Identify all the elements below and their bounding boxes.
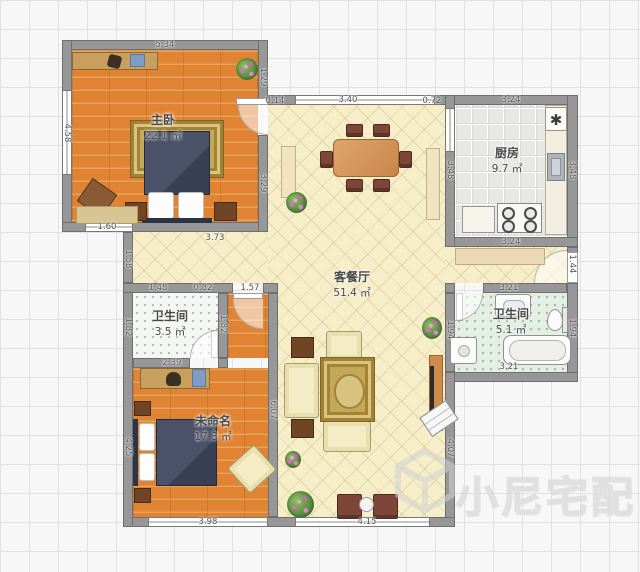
sofa-armchair[interactable] [326,331,362,360]
dimension-label: 4.07 [445,439,455,458]
bed-pillow [139,423,155,451]
stove-burner-icon [524,220,537,233]
side-table[interactable] [291,337,314,358]
dimension-label: 1.60 [98,222,117,232]
room-area: 3.5 ㎡ [152,324,188,339]
dimension-label: 3.48 [445,161,455,180]
side-table[interactable] [291,419,314,438]
room-name: 厨房 [492,144,523,161]
dimension-label: 6.07 [268,401,278,420]
dimension-label: 1.44 [567,255,577,274]
washing-machine[interactable] [450,337,477,364]
living-rug[interactable] [320,357,375,422]
nightstand[interactable] [214,202,237,221]
dining-chair[interactable] [320,151,333,168]
dining-chair[interactable] [373,124,390,137]
dining-chair[interactable] [399,151,412,168]
kitchen-sliding-door[interactable] [455,248,545,265]
dimension-label: 4.25 [123,438,133,457]
dining-chair[interactable] [346,179,363,192]
room-label-bedroom2[interactable]: 未命名 17.3 ㎡ [194,412,231,444]
dimension-label: 3.98 [199,517,218,527]
room-name: 卫生间 [493,305,529,322]
bed-headboard [133,419,138,486]
clothes-shirt-icon [192,369,206,387]
wall-segment[interactable] [483,283,567,293]
wall-segment[interactable] [218,358,228,368]
nightstand[interactable] [134,488,151,503]
dining-chair[interactable] [346,124,363,137]
dimension-label: 3.21 [500,283,519,293]
kitchen-cabinet[interactable] [462,206,495,233]
leisure-chair[interactable] [373,494,398,519]
dimension-label: 4.15 [358,517,377,527]
potted-plant[interactable] [286,192,307,213]
wall-segment[interactable] [445,283,455,293]
dimension-label: 1.29 [258,68,268,87]
dimension-label: 0.14 [266,96,285,106]
clothes-shirt-icon [130,54,145,67]
dimension-label: 1.82 [123,318,133,337]
bathtub-basin [509,340,566,361]
window[interactable] [295,95,435,105]
wall-segment[interactable] [123,283,233,293]
toilet[interactable] [547,309,563,331]
wall-segment[interactable] [263,283,278,293]
dimension-label: 4.58 [62,124,72,143]
dimension-label: 3.21 [500,362,519,372]
bed-headboard [142,218,212,223]
dimension-label: 3.24 [502,95,521,105]
dimension-label: 1.94 [445,321,455,340]
dimension-label: 0.72 [423,96,442,106]
room-area: 9.7 ㎡ [492,161,523,176]
kitchen-sink[interactable] [547,153,565,181]
leisure-chair[interactable] [337,494,362,519]
stove-burner-icon [524,207,537,220]
potted-plant[interactable] [422,317,442,339]
room-label-living-dining[interactable]: 客餐厅 51.4 ㎡ [333,268,370,300]
desk-chair-icon [166,372,181,386]
dimension-label: 3.40 [339,95,358,105]
sink-basin [551,158,561,176]
room-label-master-bedroom[interactable]: 主卧 22.1 ㎡ [144,111,181,143]
room-name: 主卧 [144,111,181,128]
room-name: 未命名 [194,412,231,429]
bathtub[interactable] [503,335,571,365]
room-label-bath-large[interactable]: 卫生间 5.1 ㎡ [493,305,529,337]
watermark-text: 小尼宅配 [456,464,636,525]
stove-burner-icon [502,220,515,233]
dimension-label: 1.94 [567,319,577,338]
dimension-label: 3.48 [567,161,577,180]
floorplan-canvas[interactable]: ✱ 主卧 22.1 ㎡ [0,0,640,572]
dining-table[interactable] [333,139,399,177]
dimension-label: 1.82 [218,315,228,334]
washer-door-icon [458,345,470,357]
sofa-three-seat[interactable] [284,363,319,418]
dimension-label: 3.29 [258,174,268,193]
side-cabinet[interactable] [426,148,440,220]
side-cabinet[interactable] [281,146,296,198]
dimension-label: 5.34 [156,40,175,50]
room-label-bath-small[interactable]: 卫生间 3.5 ㎡ [152,307,188,339]
dimension-label: 2.39 [163,358,182,368]
round-table[interactable] [359,497,374,512]
gas-appliance-icon: ✱ [550,111,563,129]
room-area: 5.1 ㎡ [493,322,529,337]
room-area: 51.4 ㎡ [333,285,370,300]
dimension-label: 1.57 [241,283,260,293]
potted-plant[interactable] [285,451,301,468]
bed-pillow [139,453,155,481]
sofa-loveseat[interactable] [323,421,371,452]
door-leaf[interactable] [236,98,268,105]
window[interactable] [445,108,455,152]
water-heater[interactable]: ✱ [545,107,567,131]
room-label-kitchen[interactable]: 厨房 9.7 ㎡ [492,144,523,176]
nightstand[interactable] [134,401,151,416]
dimension-label: 0.82 [194,283,213,293]
room-area: 22.1 ㎡ [144,128,181,143]
room-floor-living-corridor[interactable] [133,232,268,283]
dimension-label: 3.24 [502,237,521,247]
bed-pillow [178,192,204,219]
dimension-label: 1.58 [123,250,133,269]
dimension-label: 3.73 [206,233,225,243]
potted-plant[interactable] [287,491,314,518]
bed-pillow [148,192,174,219]
dimension-label: 1.48 [149,283,168,293]
stove[interactable] [497,203,542,233]
stove-burner-icon [502,207,515,220]
room-name: 卫生间 [152,307,188,324]
wall-segment[interactable] [445,372,578,382]
room-name: 客餐厅 [333,268,370,285]
dining-chair[interactable] [373,179,390,192]
room-area: 17.3 ㎡ [194,429,231,444]
potted-plant[interactable] [236,58,258,80]
